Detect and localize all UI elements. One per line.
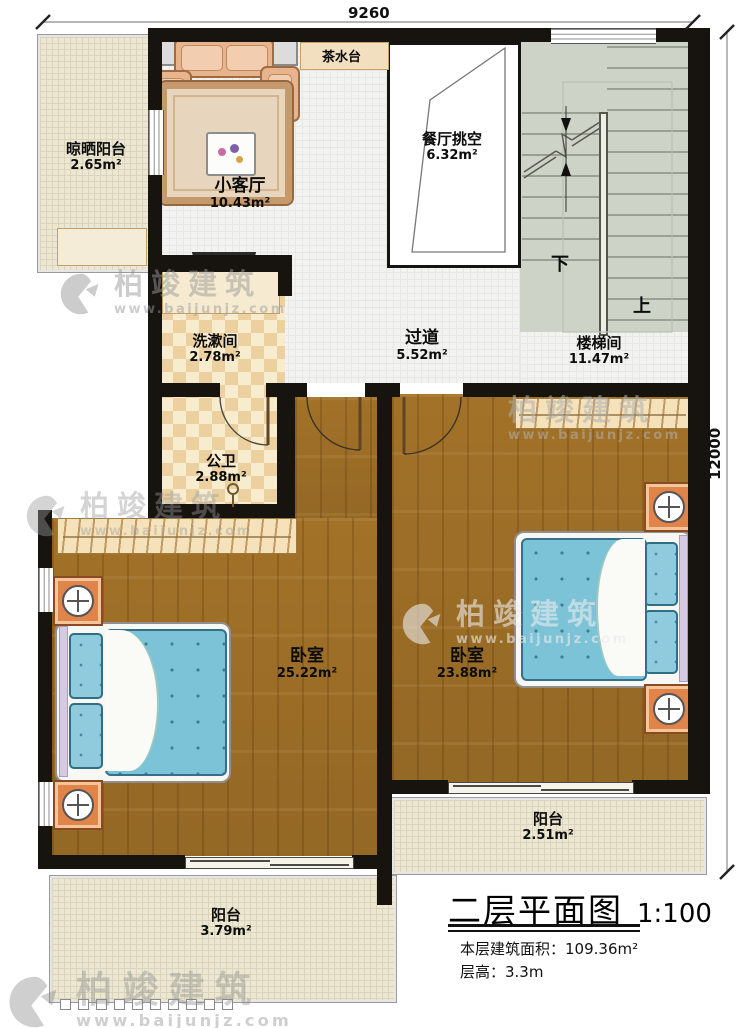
wall-segment (160, 383, 220, 397)
stairs-right-flight (607, 46, 688, 332)
laundry-counter (57, 228, 147, 266)
nightstand (53, 780, 103, 830)
room-label-balcony-left: 阳台3.79m² (200, 906, 251, 940)
railing-post (114, 999, 125, 1010)
window (38, 568, 54, 612)
pillow (69, 703, 103, 769)
wall-segment (278, 272, 292, 296)
wall-segment (148, 504, 295, 518)
washroom-counter (162, 268, 280, 314)
railing-post (60, 999, 71, 1010)
bedroom-left-entry-floor (295, 397, 377, 518)
window (38, 782, 54, 826)
bed-right (514, 531, 692, 688)
wall-segment (632, 780, 710, 794)
room-label-living: 小客厅10.43m² (210, 176, 270, 212)
sliding-door (448, 782, 634, 794)
dimension-width: 9260 (348, 4, 390, 22)
side-table (272, 40, 298, 66)
room-label-washroom: 洗漱间2.78m² (189, 332, 240, 366)
wall-segment (463, 383, 690, 397)
room-label-balcony-right: 阳台2.51m² (522, 810, 573, 844)
sliding-door (185, 857, 354, 869)
room-label-tea-counter: 茶水台 (322, 46, 361, 65)
pillow (69, 633, 103, 699)
wall-segment (148, 28, 162, 110)
wall-segment (365, 383, 400, 397)
room-label-dining-void: 餐厅挑空6.32m² (422, 130, 482, 164)
room-label-drying-balcony: 晾晒阳台2.65m² (66, 140, 126, 174)
railing-post (150, 999, 161, 1010)
wall-segment (688, 28, 710, 793)
stair-direction-up: 上 (633, 292, 651, 318)
nightstand (53, 576, 103, 626)
title-underline-thin (448, 930, 640, 932)
room-label-bedroom-right: 卧室23.88m² (437, 646, 497, 682)
floor-height-text: 层高：3.3m (460, 961, 543, 982)
pillow (644, 542, 678, 606)
nightstand (644, 482, 694, 532)
wall-segment (148, 255, 292, 272)
stairs-left-flight (522, 112, 599, 264)
floor-plan: 晾晒阳台2.65m² 小客厅10.43m² 茶水台 餐厅挑空6.32m² 洗漱间… (0, 0, 750, 1028)
railing-post (168, 999, 179, 1010)
baijun-logo-icon (58, 271, 104, 317)
stairs-handrail (599, 112, 608, 336)
window (148, 110, 164, 175)
headboard (679, 535, 688, 682)
bed-left (55, 622, 231, 783)
wall-segment (38, 612, 52, 782)
wall-segment (38, 510, 52, 568)
wall-segment (377, 397, 392, 905)
coffee-table (206, 132, 256, 176)
wall-segment (352, 855, 392, 869)
railing-post (186, 999, 197, 1010)
railing-post (132, 999, 143, 1010)
dimension-height: 12000 (706, 428, 724, 480)
wall-segment (392, 780, 448, 794)
floor-area-text: 本层建筑面积：109.36m² (460, 938, 638, 959)
headboard (59, 626, 68, 777)
wardrobe-bedroom-left (57, 518, 297, 554)
window (551, 28, 656, 44)
railing-post (222, 999, 233, 1010)
room-label-bedroom-left: 卧室25.22m² (277, 646, 337, 682)
railing-post (96, 999, 107, 1010)
wall-segment (38, 855, 185, 869)
railing-post (204, 999, 215, 1010)
room-label-corridor: 过道5.52m² (396, 328, 447, 364)
pillow (644, 610, 678, 674)
wardrobe-bedroom-right (515, 398, 690, 429)
stair-direction-down: 下 (551, 250, 569, 276)
room-label-toilet: 公卫2.88m² (195, 452, 246, 486)
wall-segment (277, 383, 295, 518)
nightstand (644, 684, 694, 734)
title-underline (448, 924, 640, 927)
railing-post (78, 999, 89, 1010)
wall-segment (148, 28, 551, 42)
room-label-stairwell: 楼梯间11.47m² (569, 334, 629, 368)
duvet (596, 539, 645, 676)
